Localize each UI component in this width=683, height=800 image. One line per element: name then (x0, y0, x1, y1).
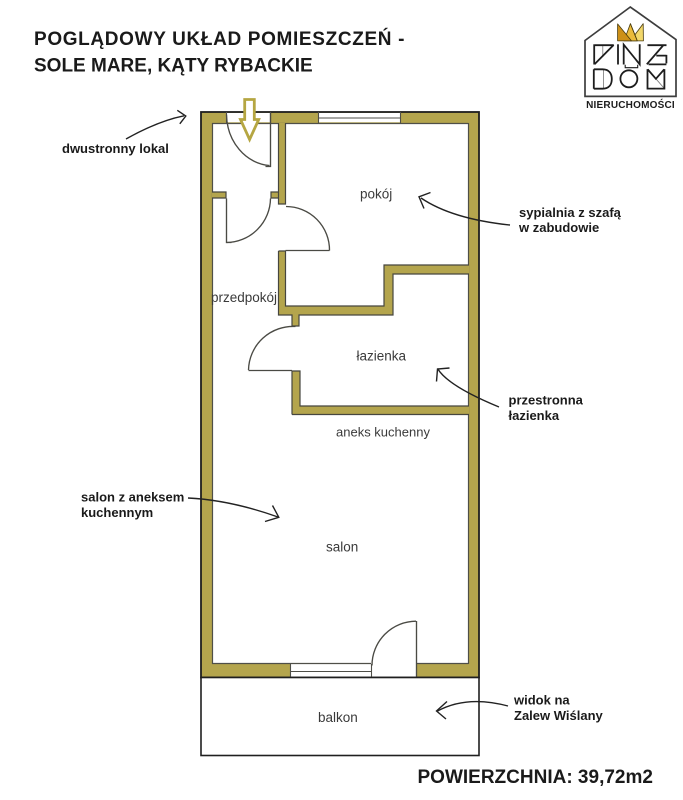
svg-text:dwustronny lokal: dwustronny lokal (62, 141, 169, 156)
svg-text:łazienka: łazienka (509, 408, 560, 423)
svg-text:kuchennym: kuchennym (81, 505, 153, 520)
svg-text:przestronna: przestronna (509, 393, 584, 408)
svg-text:pokój: pokój (360, 187, 392, 202)
svg-text:SOLE MARE, KĄTY RYBACKIE: SOLE MARE, KĄTY RYBACKIE (34, 56, 313, 77)
svg-text:łazienka: łazienka (357, 349, 407, 364)
svg-text:salon: salon (326, 540, 358, 555)
svg-text:balkon: balkon (318, 710, 358, 725)
svg-text:POGLĄDOWY UKŁAD POMIESZCZEŃ -: POGLĄDOWY UKŁAD POMIESZCZEŃ - (34, 28, 405, 50)
svg-text:Zalew Wiślany: Zalew Wiślany (514, 708, 604, 723)
svg-text:POWIERZCHNIA: 39,72m2: POWIERZCHNIA: 39,72m2 (418, 767, 653, 788)
svg-text:widok na: widok na (513, 693, 570, 708)
svg-text:salon z aneksem: salon z aneksem (81, 490, 184, 505)
svg-text:w zabudowie: w zabudowie (518, 220, 599, 235)
svg-text:sypialnia z szafą: sypialnia z szafą (519, 205, 622, 220)
svg-text:aneks kuchenny: aneks kuchenny (336, 425, 430, 440)
svg-text:przedpokój: przedpokój (211, 290, 277, 305)
svg-text:NIERUCHOMOŚCI: NIERUCHOMOŚCI (586, 98, 675, 111)
